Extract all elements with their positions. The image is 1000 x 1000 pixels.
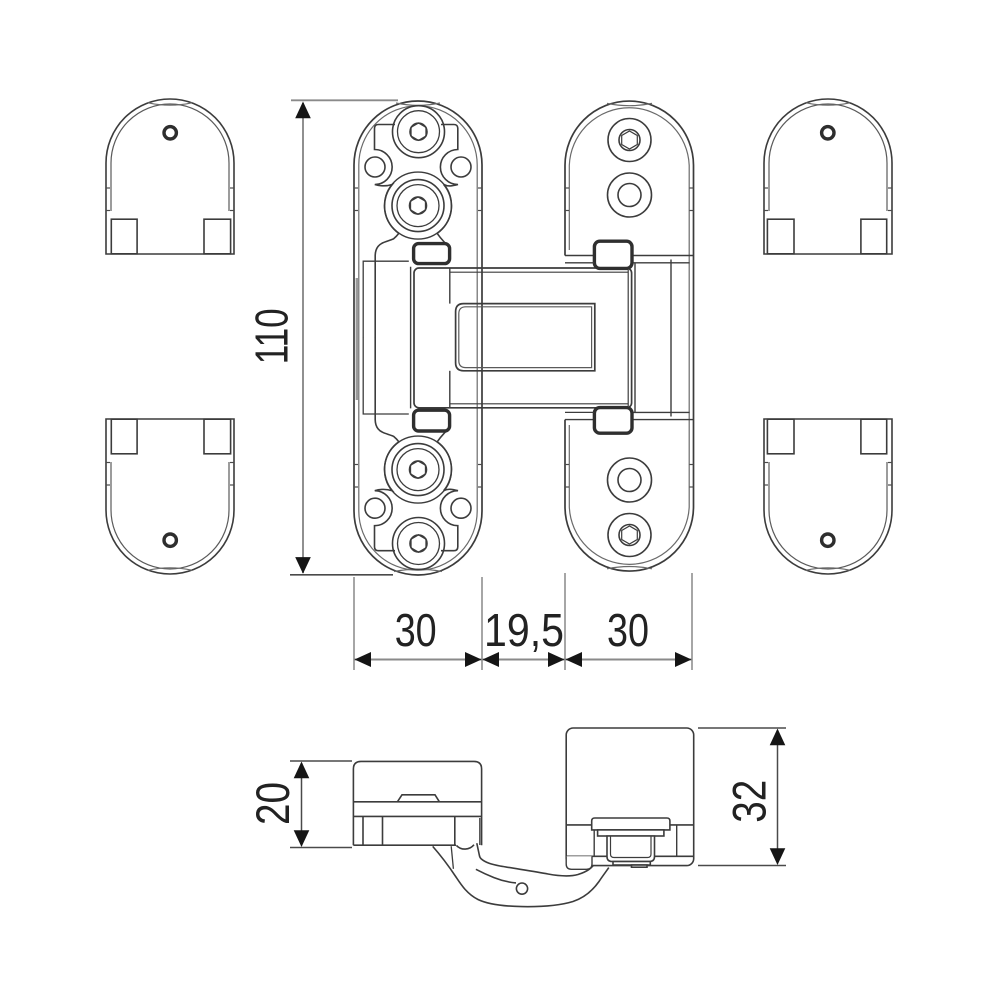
svg-text:30: 30 <box>395 604 437 656</box>
svg-text:110: 110 <box>246 308 298 364</box>
svg-text:30: 30 <box>607 604 649 656</box>
svg-text:32: 32 <box>723 780 776 823</box>
svg-text:19,5: 19,5 <box>484 604 564 656</box>
svg-text:20: 20 <box>247 782 300 825</box>
